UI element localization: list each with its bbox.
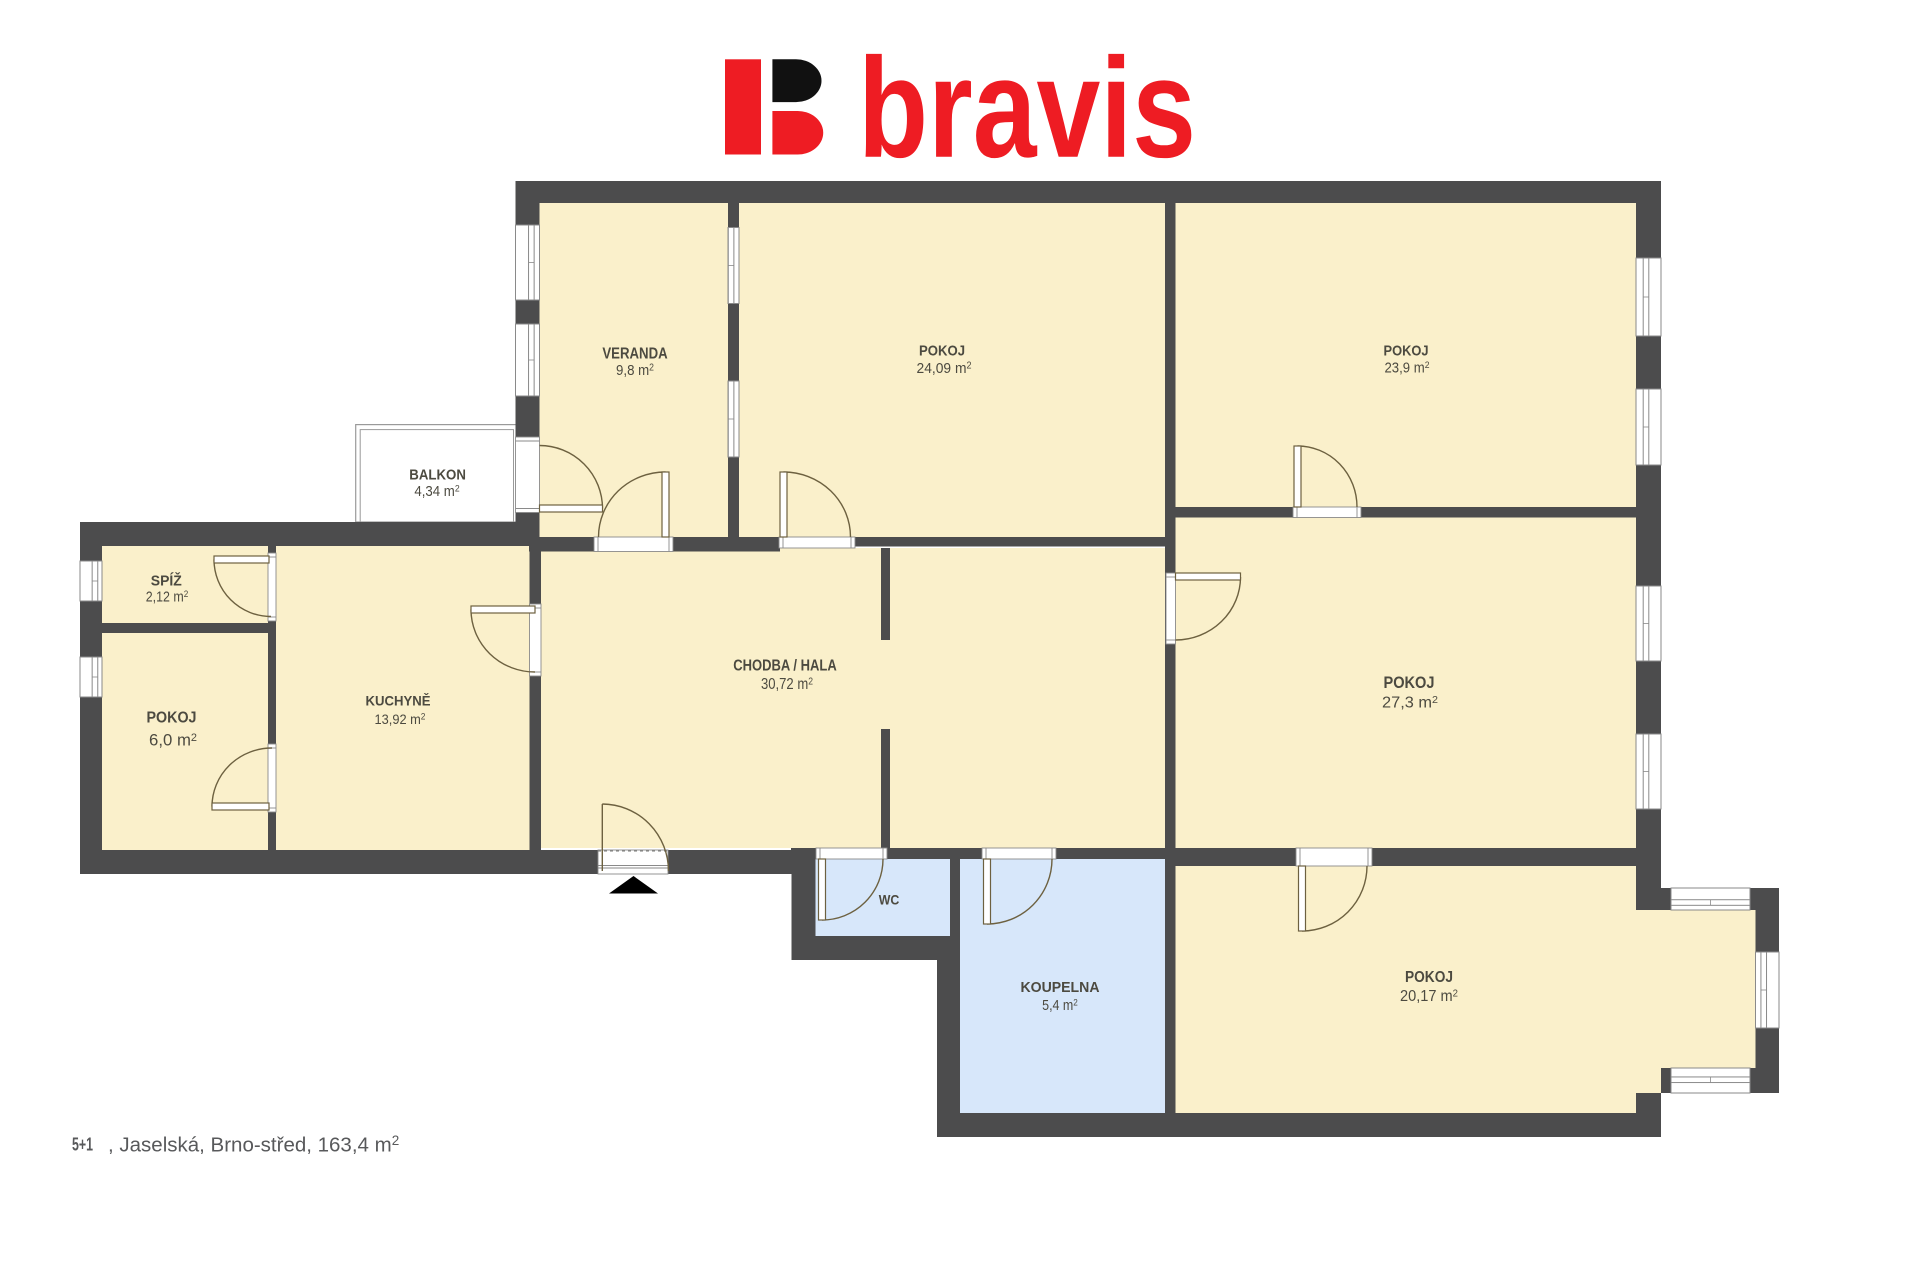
svg-text:POKOJ: POKOJ — [1405, 969, 1453, 986]
svg-text:9,8 m2: 9,8 m2 — [616, 362, 654, 379]
svg-text:24,09 m2: 24,09 m2 — [917, 360, 972, 377]
svg-text:BALKON: BALKON — [409, 468, 466, 484]
svg-text:KUCHYNĚ: KUCHYNĚ — [366, 692, 431, 709]
svg-text:13,92 m2: 13,92 m2 — [375, 711, 426, 727]
svg-text:23,9 m2: 23,9 m2 — [1385, 360, 1430, 377]
svg-text:30,72 m2: 30,72 m2 — [761, 676, 813, 693]
svg-text:20,17 m2: 20,17 m2 — [1400, 988, 1458, 1005]
svg-text:, Jaselská, Brno-střed, 163,4: , Jaselská, Brno-střed, 163,4 m2 — [108, 1133, 399, 1157]
svg-text:5,4 m2: 5,4 m2 — [1042, 998, 1078, 1015]
svg-text:5+1: 5+1 — [72, 1135, 93, 1155]
svg-text:POKOJ: POKOJ — [1384, 343, 1429, 360]
svg-text:POKOJ: POKOJ — [1384, 674, 1435, 692]
svg-text:CHODBA / HALA: CHODBA / HALA — [733, 658, 837, 675]
svg-text:KOUPELNA: KOUPELNA — [1021, 980, 1101, 996]
svg-text:POKOJ: POKOJ — [147, 709, 197, 726]
svg-text:6,0 m2: 6,0 m2 — [149, 731, 197, 750]
svg-text:WC: WC — [879, 892, 900, 908]
svg-text:SPÍŽ: SPÍŽ — [151, 571, 182, 589]
svg-text:2,12 m2: 2,12 m2 — [146, 589, 189, 606]
svg-text:4,34 m2: 4,34 m2 — [414, 484, 459, 501]
svg-text:VERANDA: VERANDA — [602, 346, 667, 363]
svg-text:27,3 m2: 27,3 m2 — [1382, 695, 1438, 712]
svg-text:POKOJ: POKOJ — [919, 343, 965, 360]
svg-text:bravis: bravis — [858, 29, 1196, 188]
